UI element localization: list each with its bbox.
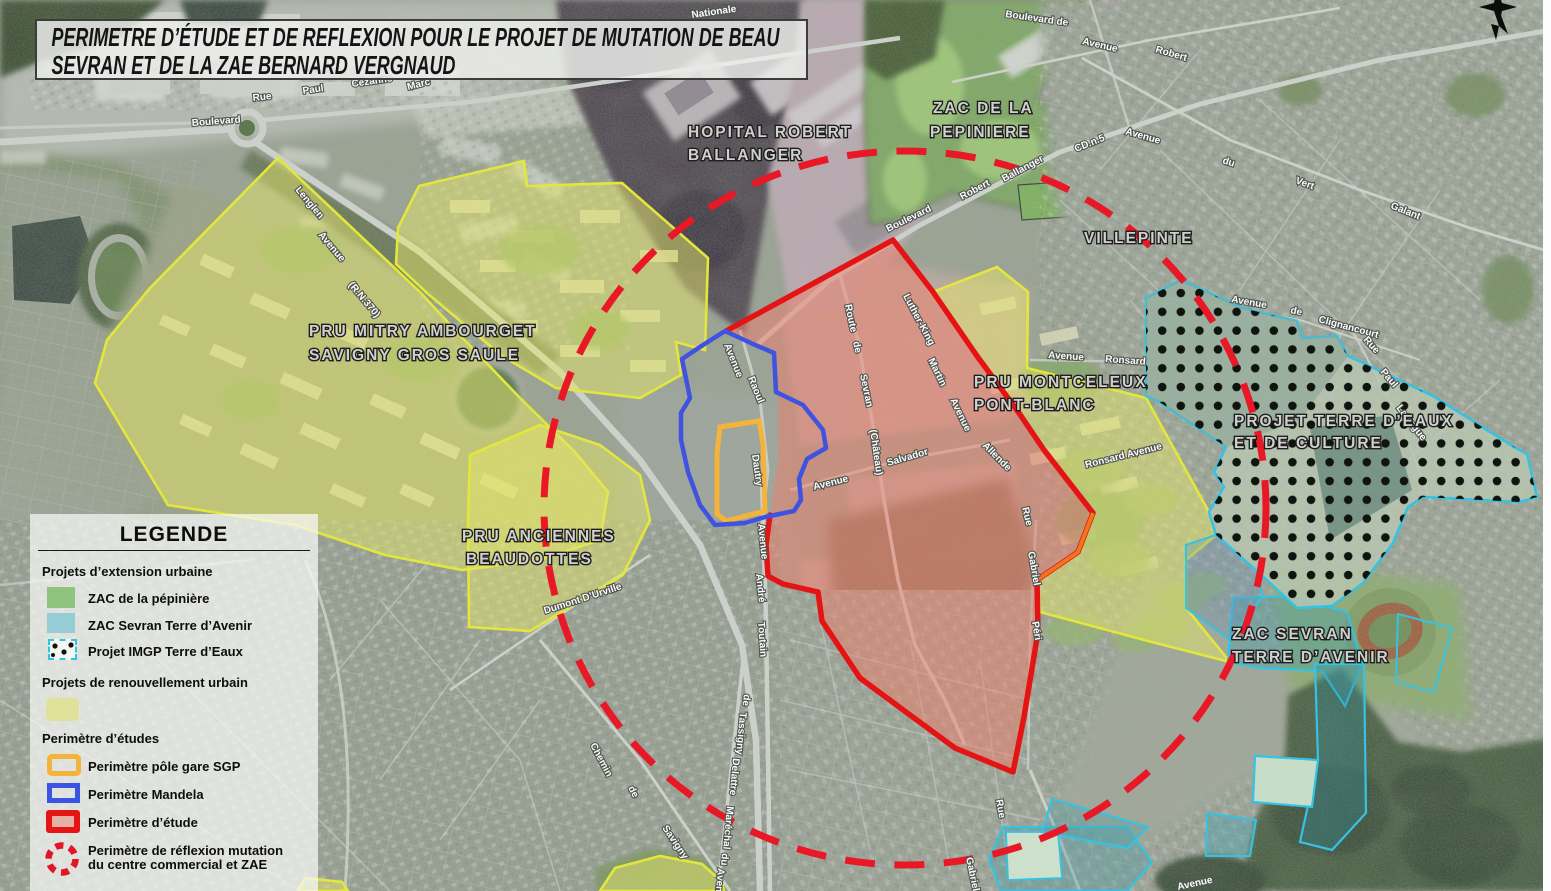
svg-text:ET DE CULTURE: ET DE CULTURE xyxy=(1234,435,1383,452)
svg-text:ZAC DE LA: ZAC DE LA xyxy=(933,100,1034,117)
svg-text:PONT-BLANC: PONT-BLANC xyxy=(974,397,1096,414)
svg-text:ZAC SEVRAN: ZAC SEVRAN xyxy=(1232,626,1353,643)
svg-text:PRU ANCIENNES: PRU ANCIENNES xyxy=(462,528,616,545)
svg-text:PEPINIERE: PEPINIERE xyxy=(930,124,1031,141)
svg-text:du: du xyxy=(718,853,730,866)
svg-text:PROJET TERRE D’EAUX: PROJET TERRE D’EAUX xyxy=(1234,413,1454,430)
svg-text:PRU MONTCELEUX: PRU MONTCELEUX xyxy=(974,374,1148,391)
svg-text:Rue: Rue xyxy=(252,91,272,104)
svg-text:de: de xyxy=(740,694,752,707)
svg-text:BEAUDOTTES: BEAUDOTTES xyxy=(466,551,593,568)
svg-text:PRU MITRY AMBOURGET: PRU MITRY AMBOURGET xyxy=(309,323,537,340)
svg-text:HOPITAL ROBERT: HOPITAL ROBERT xyxy=(688,124,852,141)
svg-text:VILLEPINTE: VILLEPINTE xyxy=(1084,230,1194,247)
svg-text:BALLANGER: BALLANGER xyxy=(688,147,803,164)
svg-text:TERRE D’AVENIR: TERRE D’AVENIR xyxy=(1232,649,1390,666)
svg-text:SAVIGNY GROS SAULE: SAVIGNY GROS SAULE xyxy=(309,347,520,364)
